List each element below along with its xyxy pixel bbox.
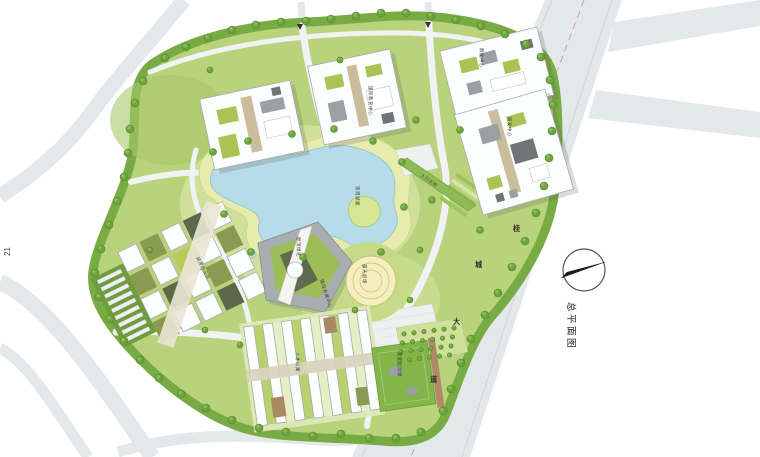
tree-highlight xyxy=(137,357,141,361)
tree-highlight xyxy=(441,337,443,339)
tree-highlight xyxy=(541,183,545,187)
branch-road-ne xyxy=(608,0,760,52)
tree-highlight xyxy=(121,174,125,178)
tree-highlight xyxy=(502,31,506,35)
tree-highlight xyxy=(178,391,182,395)
tree-highlight xyxy=(353,13,357,17)
tree-highlight xyxy=(290,131,293,134)
tree-highlight xyxy=(412,331,414,333)
tree-highlight xyxy=(533,210,537,214)
tree-highlight xyxy=(338,58,341,61)
tree-highlight xyxy=(353,308,356,311)
tree-highlight xyxy=(400,159,403,162)
tree-highlight xyxy=(303,18,307,22)
tree-highlight xyxy=(222,211,225,214)
tree-highlight xyxy=(378,10,382,14)
incubator-label: 孵化中心 xyxy=(478,48,485,68)
tree-highlight xyxy=(140,78,144,82)
tree-highlight xyxy=(442,328,444,330)
master-plan-drawing: 景观湖面 露天剧场 屋顶绿化 国际会展中心 国际教育中心 孵化中心 研发中心 研… xyxy=(0,0,760,457)
tree-highlight xyxy=(438,355,440,357)
tree-highlight xyxy=(422,330,424,332)
tree-highlight xyxy=(402,332,404,334)
lake-label: 景观湖面 xyxy=(354,186,361,206)
tree-highlight xyxy=(418,248,421,251)
road-name-char-3: 大 xyxy=(453,317,461,326)
tree-highlight xyxy=(478,23,482,27)
tree-highlight xyxy=(332,126,335,129)
tree-highlight xyxy=(162,55,166,59)
tree-highlight xyxy=(538,54,542,58)
tree-highlight xyxy=(371,138,374,141)
tree-highlight xyxy=(522,238,526,242)
road-name-char-2: 城 xyxy=(475,260,483,269)
tree-highlight xyxy=(430,197,433,200)
tree-highlight xyxy=(338,431,342,435)
tree-highlight xyxy=(310,433,314,437)
tree-highlight xyxy=(452,326,454,328)
cluster-apartments xyxy=(239,305,385,432)
tree-highlight xyxy=(403,10,407,14)
tree-highlight xyxy=(482,312,486,316)
road-sw-2 xyxy=(0,348,88,457)
tree-highlight xyxy=(132,100,136,104)
tree-highlight xyxy=(203,405,207,409)
tree-highlight xyxy=(458,360,462,364)
amphitheater-label: 露天剧场 xyxy=(361,264,368,284)
road-name-char-4: 道 xyxy=(430,375,438,384)
tree-highlight xyxy=(431,338,433,340)
tree-highlight xyxy=(256,425,260,429)
tree-highlight xyxy=(401,341,403,343)
tree-highlight xyxy=(549,128,553,132)
tree-highlight xyxy=(458,127,461,130)
amphitheater xyxy=(346,256,396,306)
tree-highlight xyxy=(328,16,332,20)
page-number: 21 xyxy=(3,247,12,256)
tree-highlight xyxy=(98,246,102,250)
tree-highlight xyxy=(208,68,211,71)
tree-highlight xyxy=(114,198,118,202)
tree-highlight xyxy=(203,328,206,331)
tree-highlight xyxy=(408,298,411,301)
tree-highlight xyxy=(418,357,420,359)
tree-highlight xyxy=(429,347,431,349)
tree-highlight xyxy=(107,316,111,320)
tree-highlight xyxy=(432,329,434,331)
compass xyxy=(561,249,605,291)
tree-highlight xyxy=(127,126,131,130)
document-page: 景观湖面 露天剧场 屋顶绿化 国际会展中心 国际教育中心 孵化中心 研发中心 研… xyxy=(0,0,760,457)
tree-highlight xyxy=(448,353,450,355)
tree-highlight xyxy=(428,356,430,358)
lake-island xyxy=(349,196,381,227)
sports-label: 室外运动场 xyxy=(396,352,403,377)
cluster-education xyxy=(308,48,412,149)
tree-highlight xyxy=(283,429,287,433)
tree-highlight xyxy=(125,150,129,154)
tree-highlight xyxy=(121,338,125,342)
research-label: 研发中心 xyxy=(506,117,513,137)
tree-highlight xyxy=(550,102,554,106)
tree-highlight xyxy=(411,340,413,342)
plan-title: 总平面图 xyxy=(565,302,577,350)
tree-highlight xyxy=(414,117,417,120)
tree-highlight xyxy=(439,346,441,348)
tree-highlight xyxy=(156,375,160,379)
road-name-char-1: 桂 xyxy=(512,224,521,233)
tree-highlight xyxy=(96,294,100,298)
tree-highlight xyxy=(418,429,422,433)
tree-highlight xyxy=(451,335,453,337)
tree-highlight xyxy=(440,408,444,412)
education-label: 国际教育中心 xyxy=(367,86,374,116)
tree-highlight xyxy=(546,155,550,159)
tree-highlight xyxy=(509,264,513,268)
tree-highlight xyxy=(468,336,472,340)
tree-highlight xyxy=(495,290,499,294)
tree-highlight xyxy=(205,35,209,39)
apartments-label: 人才公寓 xyxy=(294,352,301,372)
tree-highlight xyxy=(253,22,257,26)
tree-highlight xyxy=(246,138,249,141)
tree-highlight xyxy=(419,348,421,350)
tree-highlight xyxy=(379,249,382,252)
tree-highlight xyxy=(478,227,481,230)
tree-highlight xyxy=(148,248,151,251)
tree-highlight xyxy=(421,339,423,341)
tree-highlight xyxy=(92,270,96,274)
tree-highlight xyxy=(278,19,282,23)
tree-highlight xyxy=(448,386,452,390)
green-roof-label: 屋顶绿化 xyxy=(295,237,302,257)
tree-highlight xyxy=(409,349,411,351)
tree-highlight xyxy=(211,149,214,152)
tree-highlight xyxy=(229,27,233,31)
tree-highlight xyxy=(408,358,410,360)
tree-highlight xyxy=(453,17,457,21)
tree-highlight xyxy=(523,41,527,45)
tree-highlight xyxy=(183,44,187,48)
tree-highlight xyxy=(402,204,405,207)
tree-highlight xyxy=(428,13,432,17)
tree-highlight xyxy=(229,417,233,421)
north-arrow-circle xyxy=(563,249,605,291)
tree-highlight xyxy=(249,249,252,252)
tree-highlight xyxy=(547,77,551,81)
tree-highlight xyxy=(106,222,110,226)
tree-highlight xyxy=(393,435,397,439)
tree-highlight xyxy=(366,435,370,439)
tree-highlight xyxy=(238,343,241,346)
tree-highlight xyxy=(449,344,451,346)
branch-road-e xyxy=(588,90,760,138)
